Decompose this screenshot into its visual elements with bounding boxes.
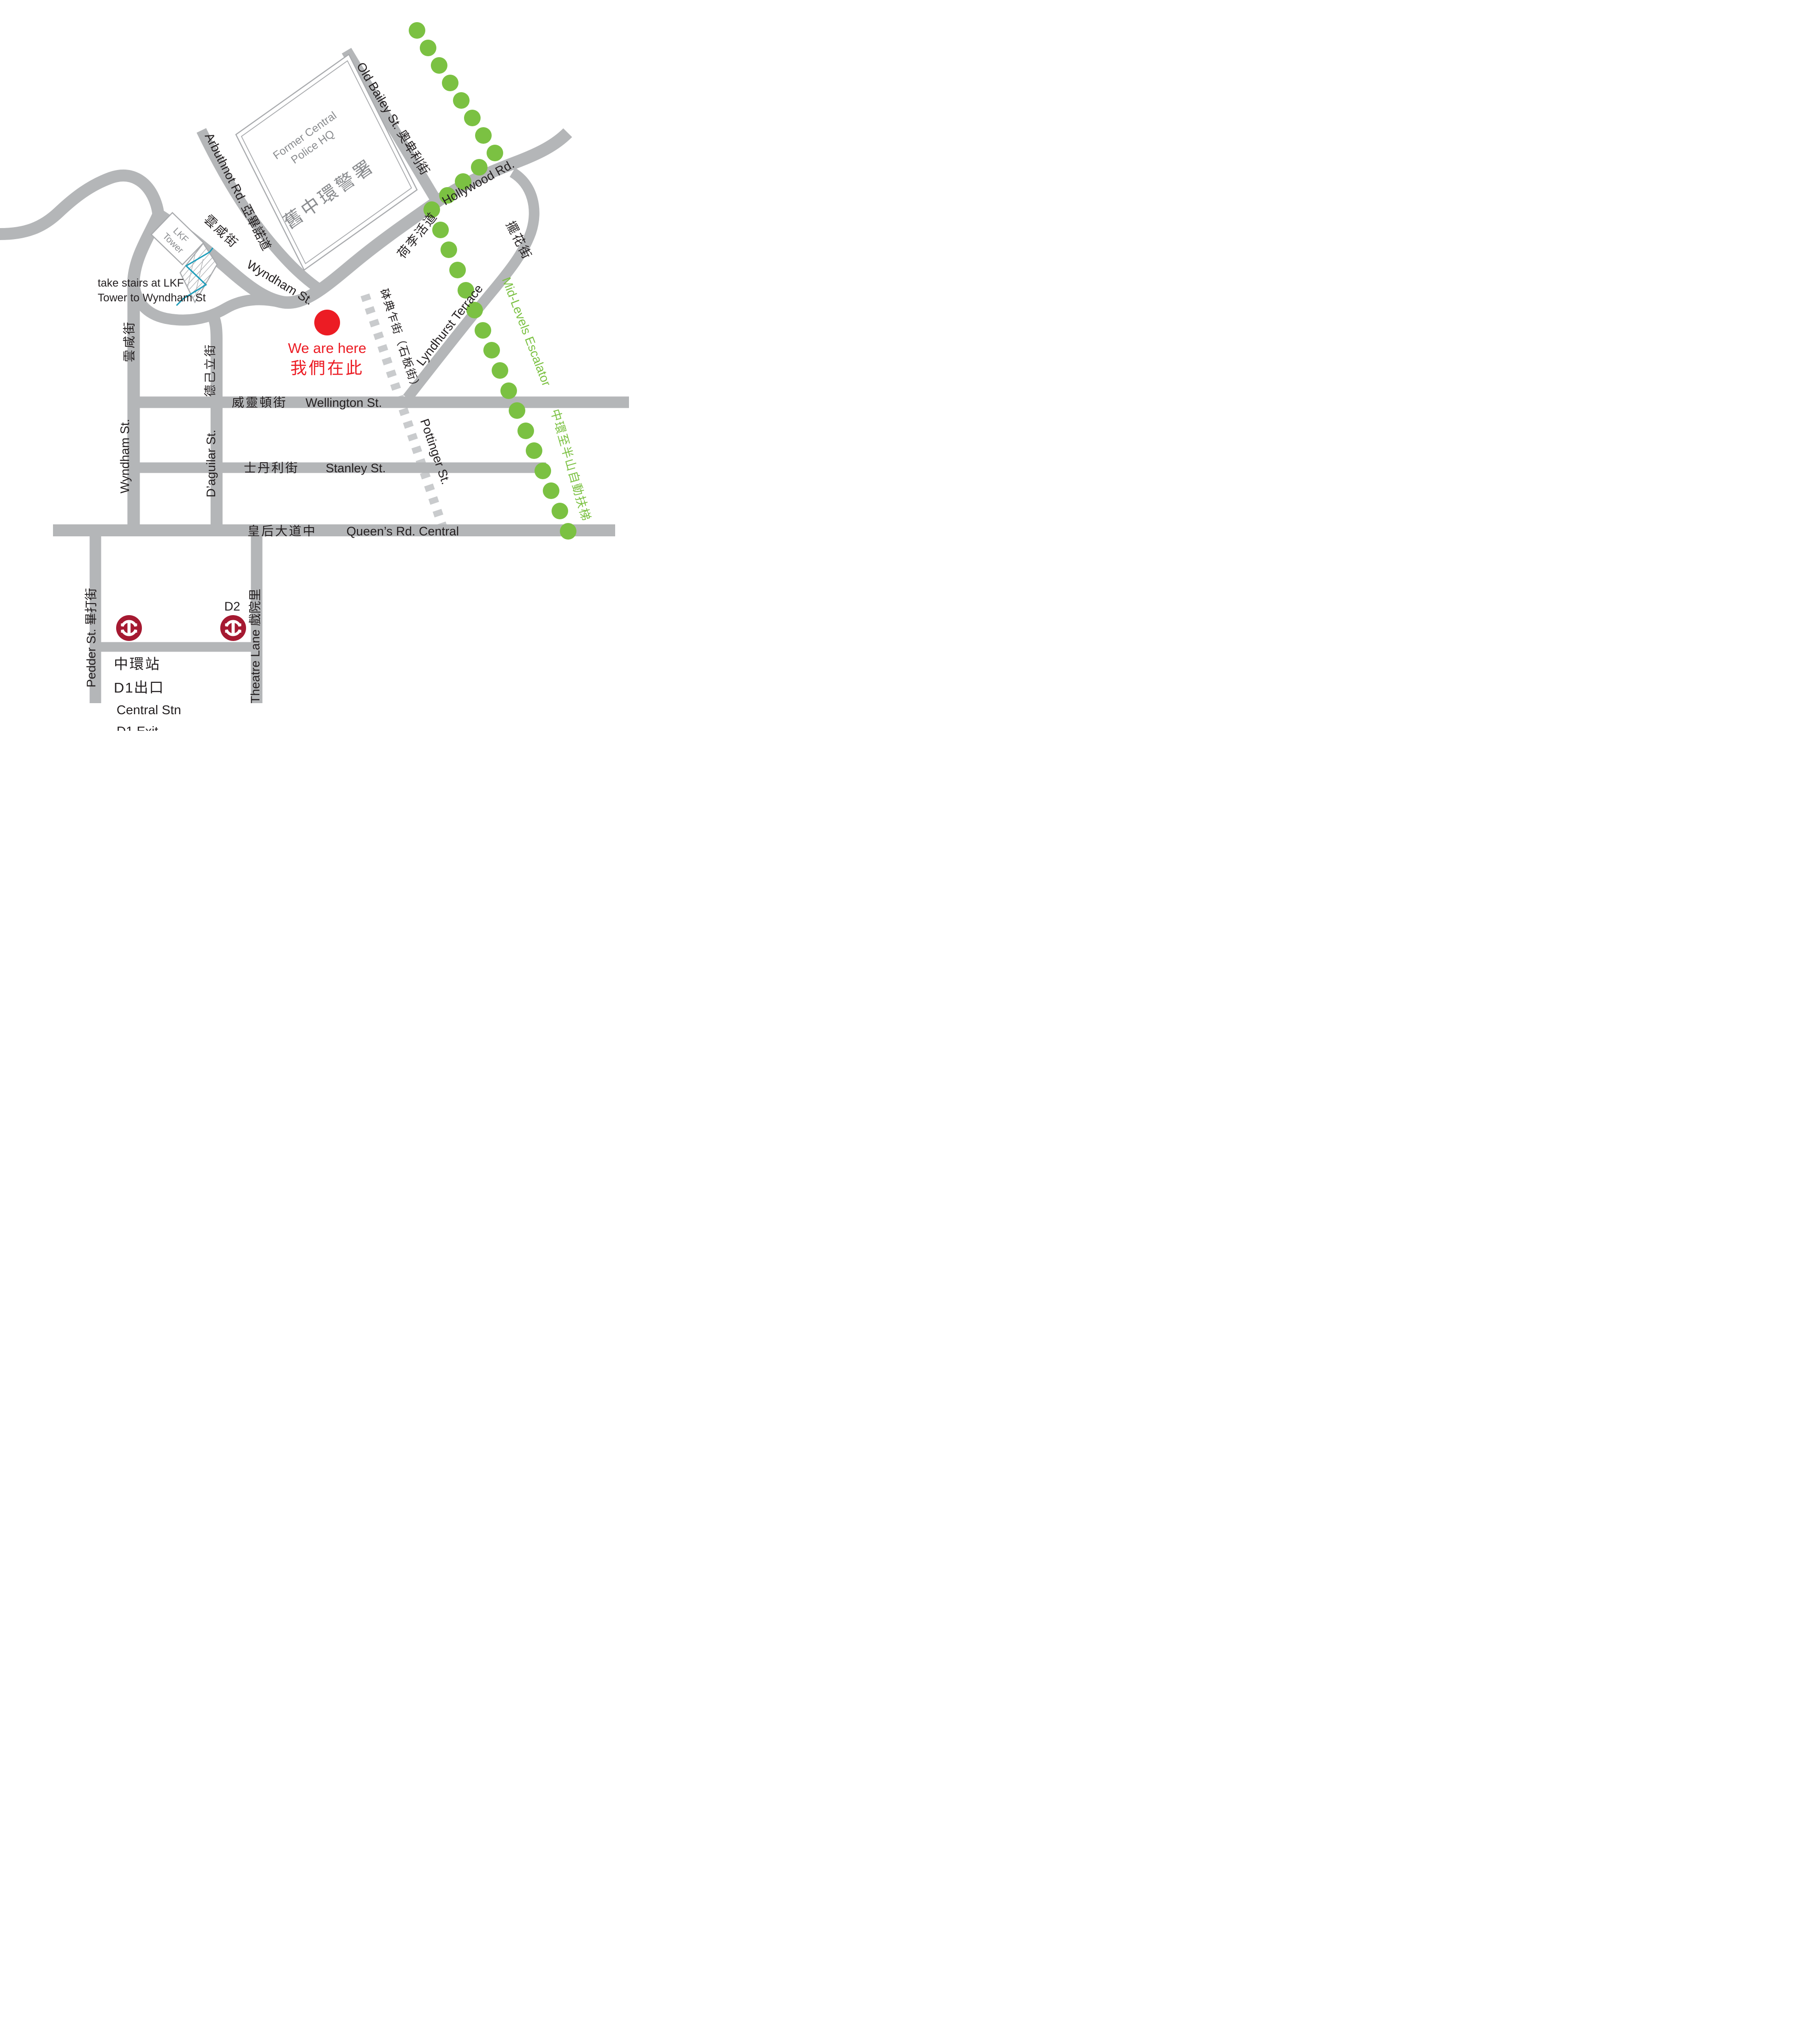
road-hollywood-west-curve <box>0 176 159 234</box>
escalator-dot <box>526 442 542 459</box>
escalator-dot <box>517 423 534 439</box>
label-exit-d2: D2 <box>224 599 241 613</box>
label-stairs-note-line1: take stairs at LKF <box>98 277 184 289</box>
label-pedder-st: Pedder St. 畢打街 <box>84 588 98 687</box>
label-central-station-en: Central Stn <box>117 703 181 717</box>
label-lyndhurst-terrace-en: Lyndhurst Terrace <box>414 282 486 369</box>
escalator-dot <box>535 463 551 479</box>
label-d1-exit-zh: D1出口 <box>114 680 165 696</box>
escalator-dot <box>409 22 425 39</box>
label-queens-rd-en: Queen’s Rd. Central <box>347 524 459 538</box>
escalator-dot <box>492 362 508 379</box>
label-wellington-zh: 威靈頓街 <box>232 396 287 410</box>
mtr-icon-d1 <box>116 615 142 641</box>
label-wyndham-st-vertical: Wyndham St. <box>118 419 132 493</box>
escalator-dot <box>420 40 436 56</box>
label-queens-rd-zh: 皇后大道中 <box>247 524 317 538</box>
escalator-dot <box>449 262 466 278</box>
escalator-dot <box>487 145 503 161</box>
label-stairs-note-line2: Tower to Wyndham St <box>98 292 206 304</box>
label-wellington-en: Wellington St. <box>306 396 382 410</box>
label-d1-exit-en: D1 Exit <box>117 724 158 731</box>
escalator-dot <box>453 92 470 109</box>
label-we-are-here-zh: 我們在此 <box>290 358 364 377</box>
escalator-dot <box>483 342 500 358</box>
label-daguilar-zh: 德己立街 <box>203 343 217 397</box>
label-stanley-en: Stanley St. <box>326 461 386 475</box>
road-wyndham-st-vertical <box>134 215 159 536</box>
escalator-dot <box>475 127 492 144</box>
we-are-here-marker <box>314 310 340 335</box>
escalator-dot <box>441 241 457 258</box>
label-central-station-zh: 中環站 <box>114 656 161 672</box>
central-hk-directions-map: LKF Tower <box>0 0 643 731</box>
label-daguilar-en: D’aguilar St. <box>204 429 218 497</box>
escalator-dot <box>552 503 568 519</box>
escalator-dot <box>509 402 525 419</box>
escalator-dot <box>442 75 458 91</box>
escalator-dot <box>431 57 447 74</box>
label-stanley-zh: 士丹利街 <box>244 461 299 475</box>
label-we-are-here-en: We are here <box>288 340 366 356</box>
escalator-dot <box>500 382 517 399</box>
escalator-dot <box>543 482 559 499</box>
label-theatre-lane: Theatre Lane 戲院里 <box>248 588 262 703</box>
label-pottinger-zh: 砵典乍街（石板街） <box>377 287 423 394</box>
escalator-dot <box>475 322 491 339</box>
mtr-icon-d2 <box>220 615 246 641</box>
escalator-dot <box>560 523 576 540</box>
road-pottinger-st <box>365 295 444 530</box>
escalator-dot <box>464 110 481 126</box>
label-wyndham-zh-vertical: 雲咸街 <box>123 321 136 362</box>
